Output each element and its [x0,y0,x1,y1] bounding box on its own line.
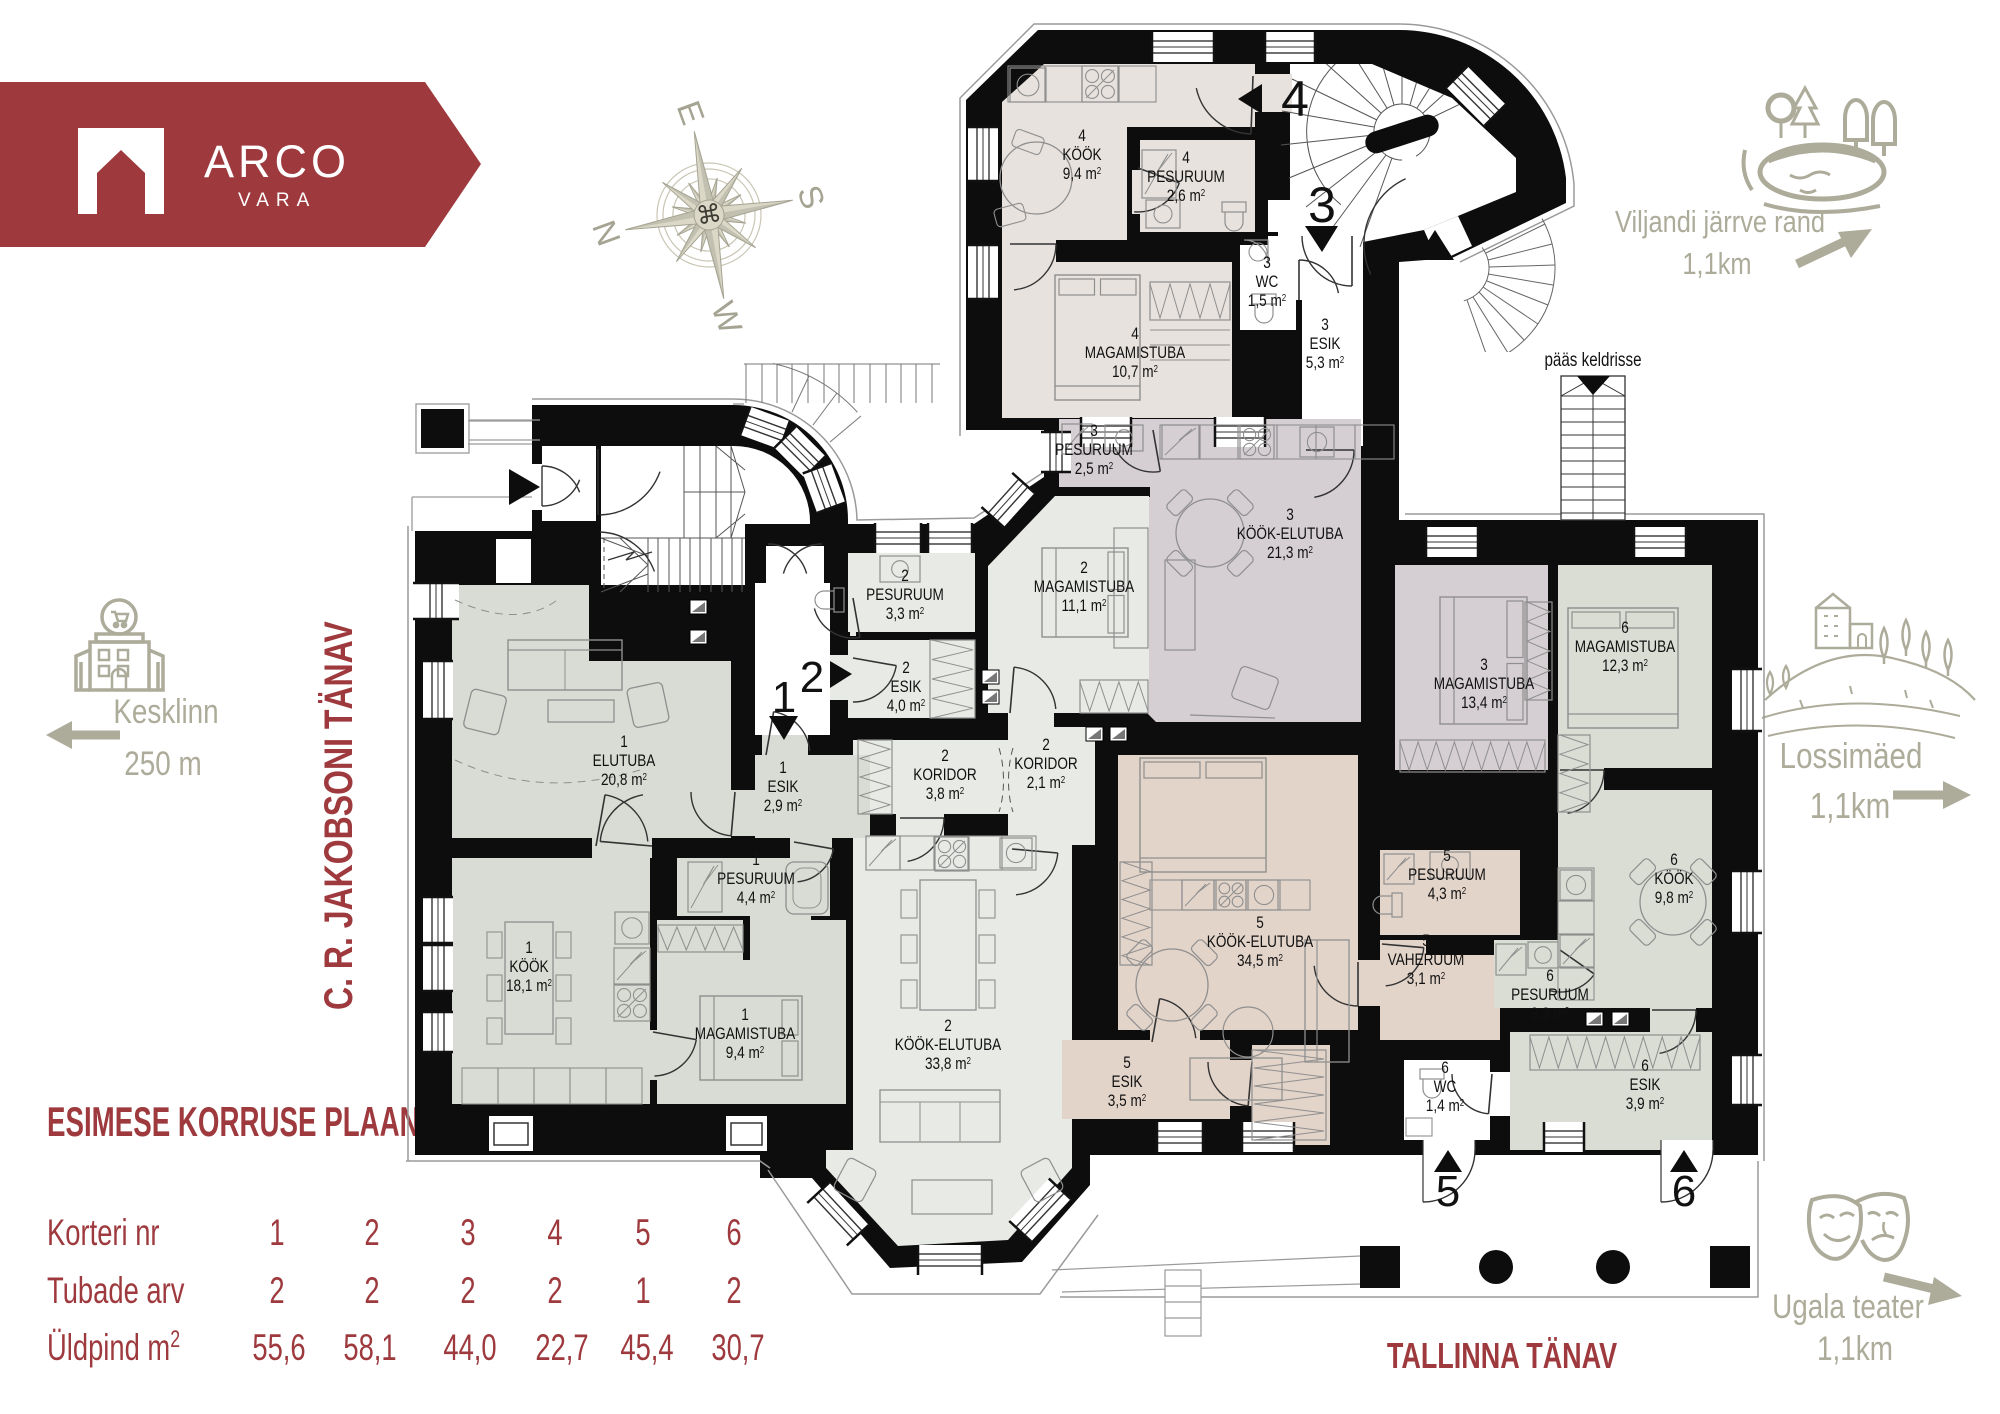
svg-text:Üldpind m2: Üldpind m2 [47,1327,180,1368]
svg-text:22,7: 22,7 [535,1327,588,1368]
svg-text:Viljandi järrve rand: Viljandi järrve rand [1615,205,1825,240]
svg-text:5: 5 [635,1212,650,1253]
svg-text:6: 6 [1672,1167,1696,1216]
svg-text:6: 6 [726,1212,741,1253]
svg-text:4: 4 [547,1212,562,1253]
svg-text:ARCO: ARCO [204,136,350,187]
svg-text:ESIMESE KORRUSE PLAAN: ESIMESE KORRUSE PLAAN [47,1098,420,1145]
svg-text:250 m: 250 m [124,744,201,782]
svg-text:30,7: 30,7 [711,1327,764,1368]
svg-text:2: 2 [800,653,824,702]
svg-text:4: 4 [1281,71,1309,127]
svg-text:pääs keldrisse: pääs keldrisse [1544,348,1641,370]
svg-text:1: 1 [635,1270,650,1311]
svg-text:Korteri nr: Korteri nr [47,1212,160,1253]
svg-text:VARA: VARA [238,190,316,211]
svg-text:2: 2 [269,1270,284,1311]
svg-text:Lossimäed: Lossimäed [1780,735,1923,775]
svg-text:45,4: 45,4 [620,1327,673,1368]
svg-text:2: 2 [364,1212,379,1253]
svg-text:5: 5 [1436,1167,1460,1216]
svg-text:Kesklinn: Kesklinn [113,692,218,730]
svg-text:TALLINNA TÄNAV: TALLINNA TÄNAV [1387,1335,1617,1376]
svg-text:1,1km: 1,1km [1682,247,1751,282]
svg-text:C. R. JAKOBSONI TÄNAV: C. R. JAKOBSONI TÄNAV [316,621,361,1010]
svg-text:2: 2 [460,1270,475,1311]
svg-text:2: 2 [364,1270,379,1311]
svg-text:55,6: 55,6 [252,1327,305,1368]
svg-text:1,1km: 1,1km [1817,1329,1893,1367]
svg-text:58,1: 58,1 [343,1327,396,1368]
svg-text:1,1km: 1,1km [1810,785,1890,825]
svg-text:Tubade arv: Tubade arv [47,1270,185,1311]
svg-text:3: 3 [1308,177,1336,233]
svg-text:Ugala teater: Ugala teater [1772,1287,1924,1325]
svg-text:2: 2 [726,1270,741,1311]
svg-text:3: 3 [460,1212,475,1253]
svg-text:1: 1 [269,1212,284,1253]
svg-text:1: 1 [772,673,796,722]
svg-text:44,0: 44,0 [443,1327,496,1368]
svg-text:2: 2 [547,1270,562,1311]
svg-text:⌘: ⌘ [694,199,723,231]
